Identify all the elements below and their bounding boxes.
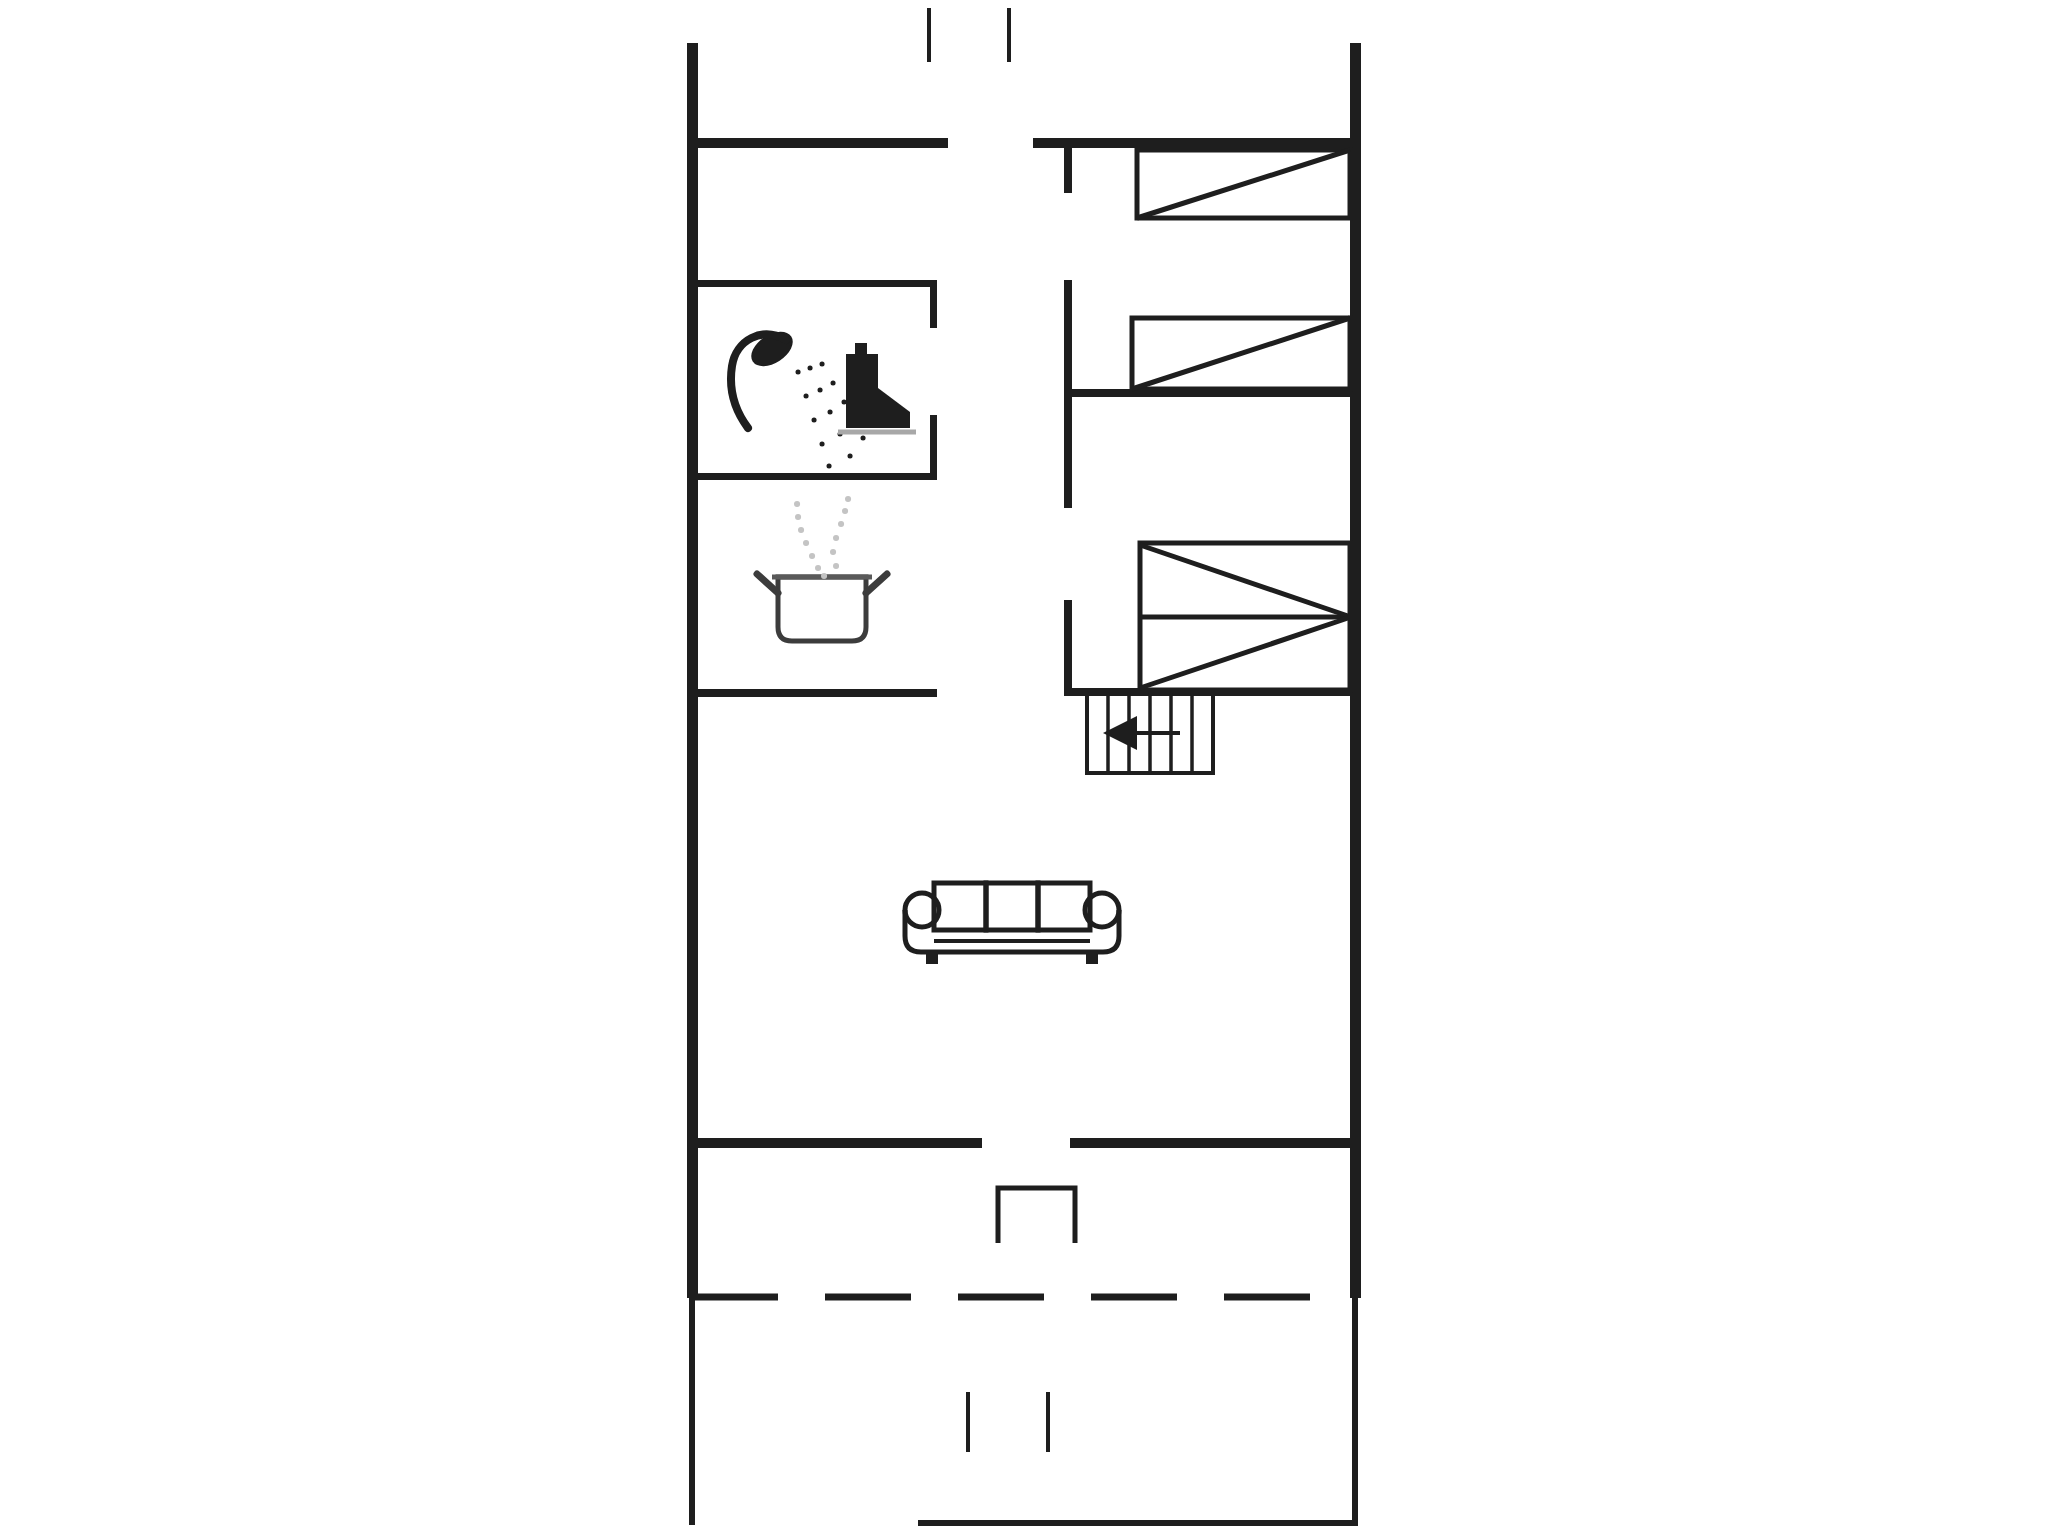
- toilet-tank-icon: [846, 354, 878, 428]
- terrace-path-mark-right: [1046, 1392, 1050, 1452]
- cooking-pot-body-icon: [778, 577, 866, 641]
- entrance-path-mark-right: [1007, 8, 1011, 62]
- bed-2-diagonal: [1132, 318, 1350, 389]
- bathroom-east-wall-upper: [930, 280, 937, 328]
- hallway-east-wall-south: [1064, 600, 1072, 696]
- bunk-bed-diagonal-lower: [1140, 618, 1348, 688]
- right-outer-wall-lower: [1352, 1298, 1358, 1525]
- left-outer-wall-upper: [687, 43, 698, 1298]
- sofa-left-foot: [926, 952, 938, 964]
- bunk-bed-diagonal-upper: [1140, 545, 1348, 616]
- bathroom-south-wall: [692, 473, 937, 480]
- bathroom-east-wall-lower: [930, 415, 937, 480]
- sofa-back-cushion-3: [1038, 883, 1090, 930]
- toilet-bowl-icon: [878, 388, 910, 428]
- left-outer-wall-lower: [689, 1298, 695, 1525]
- bathroom-north-wall: [692, 280, 937, 287]
- sofa-back-cushion-2: [986, 883, 1038, 930]
- hallway-east-wall-stub: [1064, 148, 1072, 193]
- floor-plan: [0, 0, 2048, 1536]
- terrace-door-step: [998, 1188, 1075, 1243]
- south-wall-east: [1070, 1138, 1361, 1148]
- terrace-path-mark-left: [966, 1392, 970, 1452]
- terrace-south-edge: [918, 1520, 1358, 1526]
- floor-plan-svg: [0, 0, 2048, 1536]
- bed-1-diagonal: [1137, 150, 1350, 218]
- kitchen-south-wall: [692, 689, 937, 697]
- toilet-flush-button: [855, 343, 867, 354]
- entrance-path-mark-left: [927, 8, 931, 62]
- south-wall-west: [687, 1138, 982, 1148]
- top-wall-west: [687, 138, 948, 148]
- sofa-back-cushion-1: [934, 883, 986, 930]
- top-wall-east: [1033, 138, 1361, 148]
- steam-dots-icon: [797, 499, 848, 576]
- sofa-right-foot: [1086, 952, 1098, 964]
